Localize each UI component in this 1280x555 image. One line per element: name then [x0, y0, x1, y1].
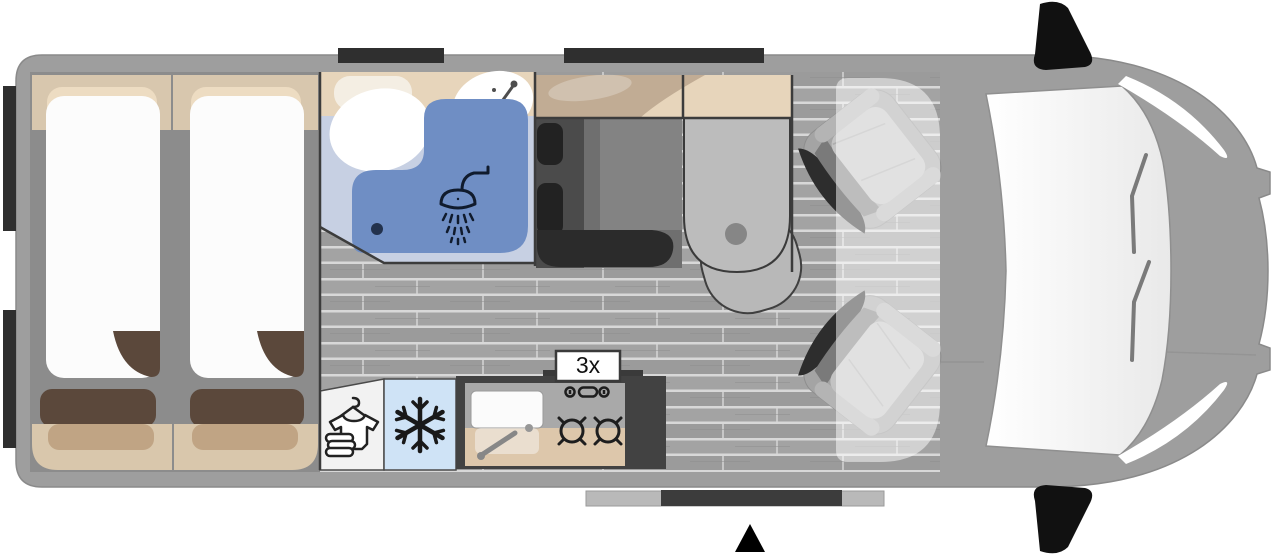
window-bar-icon	[3, 310, 16, 448]
backrest-pad	[537, 123, 563, 165]
window-bar-icon	[338, 48, 444, 63]
burner-count-label: 3x	[576, 352, 601, 378]
window-bar-icon	[3, 86, 16, 231]
counter-dot	[525, 424, 533, 432]
bench-seat-cushion	[600, 118, 682, 230]
cab-roof-overlay	[836, 78, 940, 462]
campervan-floorplan: 3x	[0, 0, 1280, 555]
window-bar-icon	[564, 48, 764, 63]
table-pedestal	[725, 223, 747, 245]
windshield	[986, 86, 1171, 455]
kitchen-faucet-base	[477, 452, 485, 460]
entrance-arrow-icon	[735, 524, 765, 552]
drain-icon	[371, 223, 383, 235]
foot-cushion	[190, 389, 304, 427]
bathroom	[320, 61, 542, 263]
bench-shadow	[192, 424, 298, 450]
fridge	[384, 379, 456, 470]
table	[684, 118, 790, 272]
bed-1	[32, 75, 172, 470]
wardrobe	[320, 379, 384, 470]
bed-2	[173, 75, 318, 470]
kitchen-sink	[471, 391, 543, 428]
side-mirror-icon	[1034, 485, 1092, 553]
sliding-door-icon	[586, 490, 884, 506]
side-mirror-icon	[1034, 2, 1092, 70]
bench-shadow	[48, 424, 154, 450]
bench-bolster	[537, 230, 673, 267]
backrest-pad	[537, 183, 563, 235]
foot-cushion	[40, 389, 156, 427]
